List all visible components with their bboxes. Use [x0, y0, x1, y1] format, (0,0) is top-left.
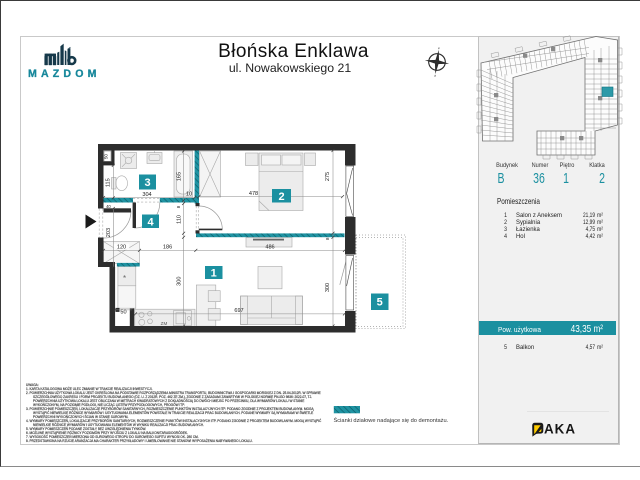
- svg-text:165: 165: [176, 172, 182, 181]
- svg-text:2: 2: [278, 191, 284, 203]
- svg-text:120: 120: [117, 245, 126, 251]
- svg-text:50: 50: [120, 309, 126, 315]
- svg-text:275: 275: [325, 172, 331, 181]
- svg-text:40: 40: [106, 204, 111, 209]
- svg-text:186: 186: [163, 245, 172, 251]
- svg-text:478: 478: [249, 191, 258, 197]
- svg-text:486: 486: [265, 245, 274, 251]
- svg-text:ZM: ZM: [161, 321, 168, 326]
- svg-text:*: *: [123, 274, 126, 283]
- svg-text:697: 697: [234, 308, 243, 314]
- svg-text:MAZDOM: MAZDOM: [28, 68, 101, 80]
- svg-text:300: 300: [325, 283, 331, 292]
- svg-text:4: 4: [147, 216, 154, 228]
- svg-text:50: 50: [104, 154, 109, 160]
- svg-text:8: 8: [325, 237, 330, 240]
- svg-text:1: 1: [211, 267, 217, 279]
- svg-text:3: 3: [144, 177, 150, 189]
- svg-text:115: 115: [106, 178, 112, 187]
- svg-text:110: 110: [176, 215, 182, 224]
- svg-text:203: 203: [106, 228, 112, 237]
- svg-text:304: 304: [142, 192, 151, 198]
- svg-text:10: 10: [186, 191, 192, 197]
- svg-text:300: 300: [176, 277, 182, 286]
- svg-text:5: 5: [377, 297, 383, 309]
- svg-text:AKA: AKA: [544, 422, 576, 437]
- svg-text:8: 8: [176, 205, 181, 208]
